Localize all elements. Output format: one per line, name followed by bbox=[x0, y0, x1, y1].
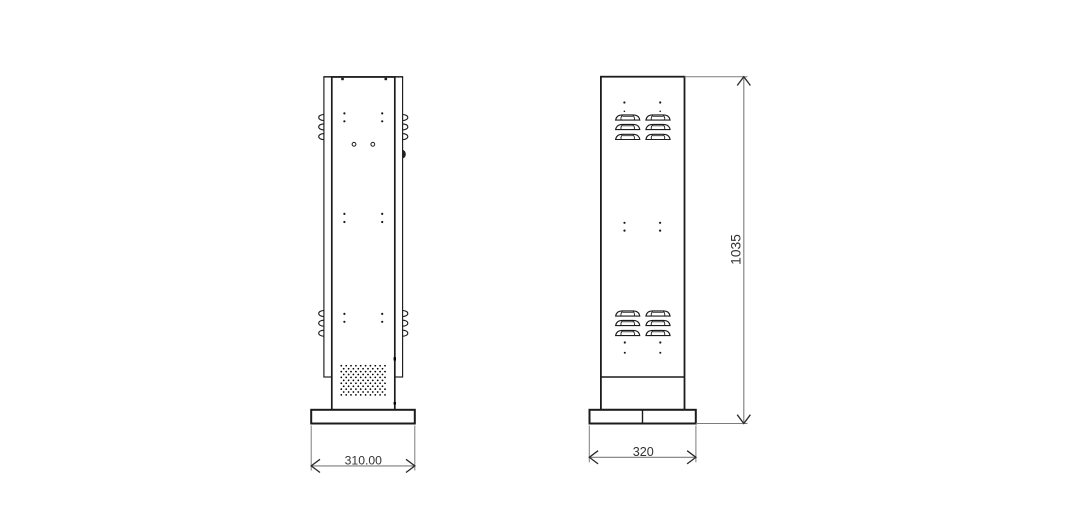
svg-text:1035: 1035 bbox=[729, 234, 744, 265]
svg-text:320: 320 bbox=[633, 445, 654, 459]
svg-text:310.00: 310.00 bbox=[345, 454, 382, 468]
